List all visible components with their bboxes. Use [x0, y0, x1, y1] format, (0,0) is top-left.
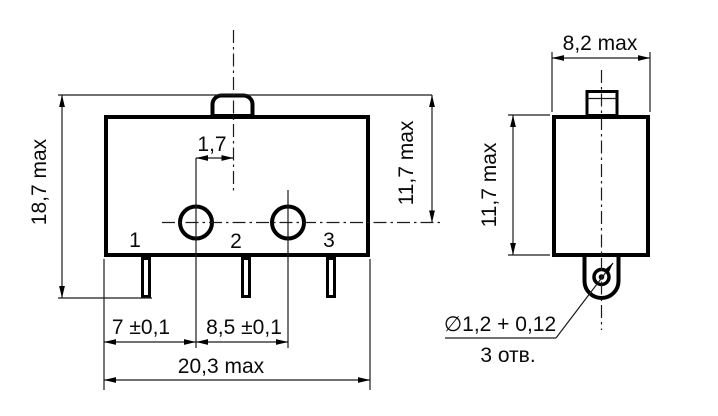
drawing-canvas: 18,7 max 1,7 11,7 max 7 ±0,1 8,5 ±0,1 20…: [0, 0, 718, 416]
dim-top-to-hole-axis: 11,7 max: [395, 95, 432, 223]
pin-1: [143, 259, 150, 297]
plunger-offset-label: 1,7: [197, 133, 226, 156]
front-view: [106, 95, 368, 296]
pin-3-label: 3: [323, 229, 335, 252]
overall-depth-label: 8,2 max: [563, 32, 638, 55]
dim-overall-width: 20,3 max: [104, 355, 370, 380]
overall-width-label: 20,3 max: [178, 355, 265, 378]
technical-drawing: 18,7 max 1,7 11,7 max 7 ±0,1 8,5 ±0,1 20…: [0, 0, 718, 416]
hole-spacing-label: 8,5 ±0,1: [206, 316, 282, 339]
overall-height-label: 18,7 max: [28, 138, 51, 225]
edge-to-first-hole-label: 7 ±0,1: [112, 316, 170, 339]
pin-2-label: 2: [230, 230, 242, 253]
top-to-hole-axis-label: 11,7 max: [395, 120, 418, 205]
dim-body-height: 11,7 max: [478, 115, 550, 255]
pin-3: [328, 259, 335, 297]
hole-diameter-label: ∅1,2 + 0,12: [444, 313, 556, 336]
pin-2: [243, 259, 250, 297]
side-body: [554, 117, 648, 255]
pin-1-label: 1: [129, 229, 141, 252]
front-plunger: [213, 95, 253, 116]
hole-count-label: 3 отв.: [480, 344, 535, 367]
body-height-label: 11,7 max: [478, 142, 501, 227]
